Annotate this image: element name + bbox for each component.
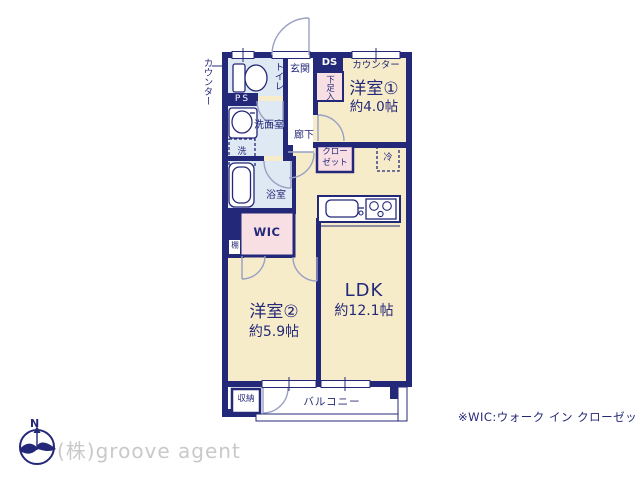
floorplan-page: カウンター トイレ 玄関 DS 下足入 カウンター 洋室① 約4.0帖 PS 洗…: [0, 0, 640, 480]
label-room1-size: 約4.0帖: [350, 100, 398, 116]
label-room2: 洋室②: [249, 303, 298, 323]
label-ds: DS: [322, 57, 338, 69]
label-shelf: 棚: [231, 241, 239, 249]
label-toilet: トイレ: [273, 62, 283, 91]
label-ldk-size: 約12.1帖: [334, 303, 393, 319]
label-shoe-box: 下足入: [325, 75, 334, 101]
label-counter-top: カウンター: [352, 61, 400, 72]
company-name: (株)groove agent: [57, 440, 241, 463]
stove-icon: [366, 199, 396, 219]
label-entrance: 玄関: [290, 64, 310, 76]
wic-note: ※WIC:ウォーク イン クローゼット: [458, 411, 640, 424]
entrance-threshold: [272, 52, 310, 59]
label-wic: WIC: [254, 226, 281, 239]
compass-n-label: N: [30, 418, 39, 431]
label-balcony: バルコニー: [303, 396, 360, 408]
label-room1: 洋室①: [349, 80, 398, 100]
label-closet-line1: クロー: [322, 148, 348, 158]
compass: [19, 426, 56, 464]
label-storage: 収納: [237, 395, 254, 405]
entrance-door: [272, 18, 309, 55]
label-hallway: 廊下: [294, 130, 314, 142]
label-closet-line2: ゼット: [322, 159, 348, 169]
sink-icon: [326, 200, 358, 217]
label-fridge: 冷: [383, 153, 392, 163]
label-bath: 浴室: [266, 190, 286, 202]
label-counter-left: カウンター: [202, 58, 212, 106]
toilet-icon: [233, 64, 267, 92]
label-ps: PS: [235, 94, 250, 104]
washbasin-icon: [229, 108, 257, 138]
label-washroom: 洗面室: [254, 120, 284, 132]
label-room2-size: 約5.9帖: [249, 324, 299, 340]
label-washer: 洗: [237, 147, 246, 157]
kitchen-counter: [318, 196, 400, 226]
bathtub-icon: [229, 163, 254, 207]
label-ldk: LDK: [345, 281, 384, 302]
